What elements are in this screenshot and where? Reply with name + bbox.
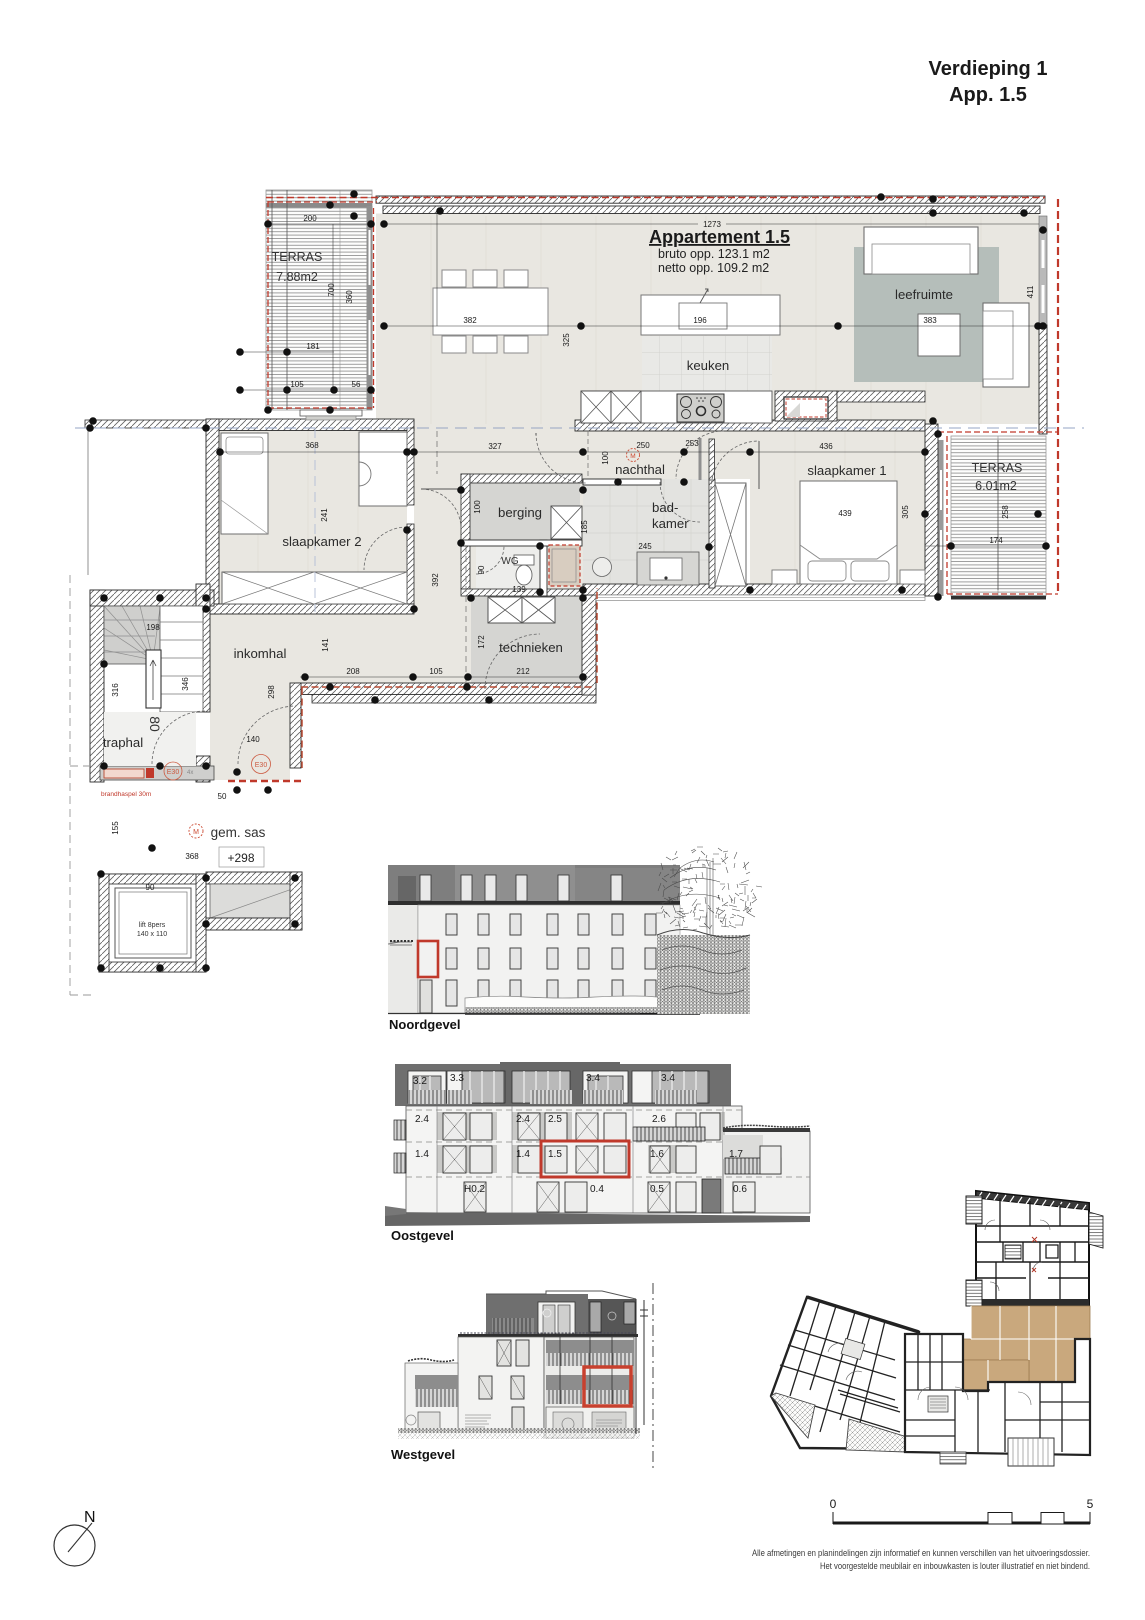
svg-text:382: 382 xyxy=(463,316,477,325)
svg-text:392: 392 xyxy=(431,573,440,587)
svg-text:411: 411 xyxy=(1026,285,1035,298)
svg-text:140 x 110: 140 x 110 xyxy=(137,931,167,938)
svg-text:5: 5 xyxy=(1087,1497,1094,1511)
svg-text:7.88m2: 7.88m2 xyxy=(276,270,318,284)
svg-text:250: 250 xyxy=(636,441,650,450)
svg-text:196: 196 xyxy=(693,316,707,325)
svg-text:E30: E30 xyxy=(255,762,268,769)
svg-text:keuken: keuken xyxy=(687,358,730,373)
svg-text:360: 360 xyxy=(345,290,354,304)
svg-text:80: 80 xyxy=(147,716,163,732)
svg-text:325: 325 xyxy=(562,333,571,347)
svg-text:208: 208 xyxy=(346,667,360,676)
svg-text:1.7: 1.7 xyxy=(729,1149,743,1160)
svg-text:368: 368 xyxy=(305,441,319,450)
svg-text:50: 50 xyxy=(218,792,227,801)
svg-text:3.2: 3.2 xyxy=(413,1076,427,1087)
svg-text:4x: 4x xyxy=(187,770,193,776)
svg-text:198: 198 xyxy=(146,623,160,632)
svg-text:technieken: technieken xyxy=(499,640,563,655)
svg-text:105: 105 xyxy=(290,380,304,389)
svg-text:Alle afmetingen en planindelin: Alle afmetingen en planindelingen zijn i… xyxy=(752,1548,1090,1558)
svg-text:155: 155 xyxy=(111,821,120,835)
svg-text:368: 368 xyxy=(185,852,199,861)
svg-text:327: 327 xyxy=(488,442,502,451)
svg-text:0.6: 0.6 xyxy=(733,1184,747,1195)
svg-text:436: 436 xyxy=(819,442,833,451)
svg-text:172: 172 xyxy=(477,635,486,649)
svg-text:245: 245 xyxy=(638,542,652,551)
svg-text:1.6: 1.6 xyxy=(650,1149,664,1160)
svg-text:258: 258 xyxy=(1001,505,1010,519)
svg-text:Appartement 1.5: Appartement 1.5 xyxy=(649,227,790,247)
svg-text:185: 185 xyxy=(580,520,589,534)
svg-text:berging: berging xyxy=(498,505,542,520)
svg-text:305: 305 xyxy=(901,505,910,519)
svg-text:slaapkamer 2: slaapkamer 2 xyxy=(282,534,361,549)
svg-text:Westgevel: Westgevel xyxy=(391,1447,455,1462)
svg-text:212: 212 xyxy=(516,667,530,676)
svg-text:383: 383 xyxy=(923,316,937,325)
svg-text:bad-: bad- xyxy=(652,500,678,515)
svg-text:346: 346 xyxy=(181,677,190,691)
svg-text:Noordgevel: Noordgevel xyxy=(389,1017,461,1032)
svg-text:E30: E30 xyxy=(167,769,180,776)
svg-text:105: 105 xyxy=(429,667,443,676)
svg-text:200: 200 xyxy=(303,214,317,223)
svg-text:M: M xyxy=(630,453,635,460)
svg-text:100: 100 xyxy=(473,500,482,514)
svg-text:N: N xyxy=(84,1509,96,1526)
svg-text:2.6: 2.6 xyxy=(652,1114,666,1125)
svg-text:0.5: 0.5 xyxy=(650,1184,664,1195)
svg-text:TERRAS: TERRAS xyxy=(272,250,323,264)
svg-text:1.5: 1.5 xyxy=(548,1149,562,1160)
svg-text:0.4: 0.4 xyxy=(590,1184,604,1195)
svg-text:nachthal: nachthal xyxy=(615,462,665,477)
svg-text:kamer: kamer xyxy=(652,516,689,531)
svg-text:Verdieping 1: Verdieping 1 xyxy=(929,58,1048,80)
svg-text:174: 174 xyxy=(989,536,1003,545)
svg-text:App. 1.5: App. 1.5 xyxy=(949,84,1027,106)
svg-text:inkomhal: inkomhal xyxy=(234,646,287,661)
svg-text:leefruimte: leefruimte xyxy=(895,287,953,302)
svg-text:90: 90 xyxy=(477,565,486,574)
svg-text:WG: WG xyxy=(501,556,518,567)
svg-text:Het voorgestelde meubilair en: Het voorgestelde meubilair en inbouwkast… xyxy=(820,1561,1090,1571)
svg-text:M: M xyxy=(193,829,199,836)
svg-text:90: 90 xyxy=(146,883,155,892)
svg-text:700: 700 xyxy=(327,283,336,297)
svg-text:1.4: 1.4 xyxy=(415,1149,429,1160)
svg-text:3.4: 3.4 xyxy=(586,1073,600,1084)
svg-text:traphal: traphal xyxy=(103,735,143,750)
svg-text:gem. sas: gem. sas xyxy=(211,825,266,840)
svg-text:316: 316 xyxy=(111,683,120,697)
svg-text:0: 0 xyxy=(830,1497,837,1511)
svg-text:2.4: 2.4 xyxy=(415,1114,429,1125)
svg-text:139: 139 xyxy=(512,585,526,594)
svg-text:TERRAS: TERRAS xyxy=(972,461,1023,475)
svg-text:100: 100 xyxy=(601,451,610,465)
svg-text:lift 8pers: lift 8pers xyxy=(139,922,166,929)
svg-text:bruto opp. 123.1 m2: bruto opp. 123.1 m2 xyxy=(658,247,770,261)
svg-text:1.4: 1.4 xyxy=(516,1149,530,1160)
svg-text:2.4: 2.4 xyxy=(516,1114,530,1125)
svg-text:181: 181 xyxy=(306,342,320,351)
svg-text:141: 141 xyxy=(321,638,330,652)
svg-text:brandhaspel 30m: brandhaspel 30m xyxy=(101,791,151,798)
svg-text:slaapkamer 1: slaapkamer 1 xyxy=(807,463,886,478)
svg-text:1273: 1273 xyxy=(703,220,721,229)
svg-text:439: 439 xyxy=(838,509,852,518)
svg-text:H0.2: H0.2 xyxy=(464,1184,486,1195)
svg-text:2.5: 2.5 xyxy=(548,1114,562,1125)
svg-text:netto opp. 109.2 m2: netto opp. 109.2 m2 xyxy=(658,261,769,275)
svg-text:3.4: 3.4 xyxy=(661,1073,675,1084)
svg-text:6.01m2: 6.01m2 xyxy=(975,479,1017,493)
svg-text:241: 241 xyxy=(320,508,329,522)
svg-text:Oostgevel: Oostgevel xyxy=(391,1228,454,1243)
svg-text:56: 56 xyxy=(352,380,361,389)
svg-text:3.3: 3.3 xyxy=(450,1073,464,1084)
svg-text:+298: +298 xyxy=(227,851,254,865)
svg-text:140: 140 xyxy=(246,735,260,744)
svg-text:253: 253 xyxy=(685,439,699,448)
svg-text:298: 298 xyxy=(267,685,276,699)
